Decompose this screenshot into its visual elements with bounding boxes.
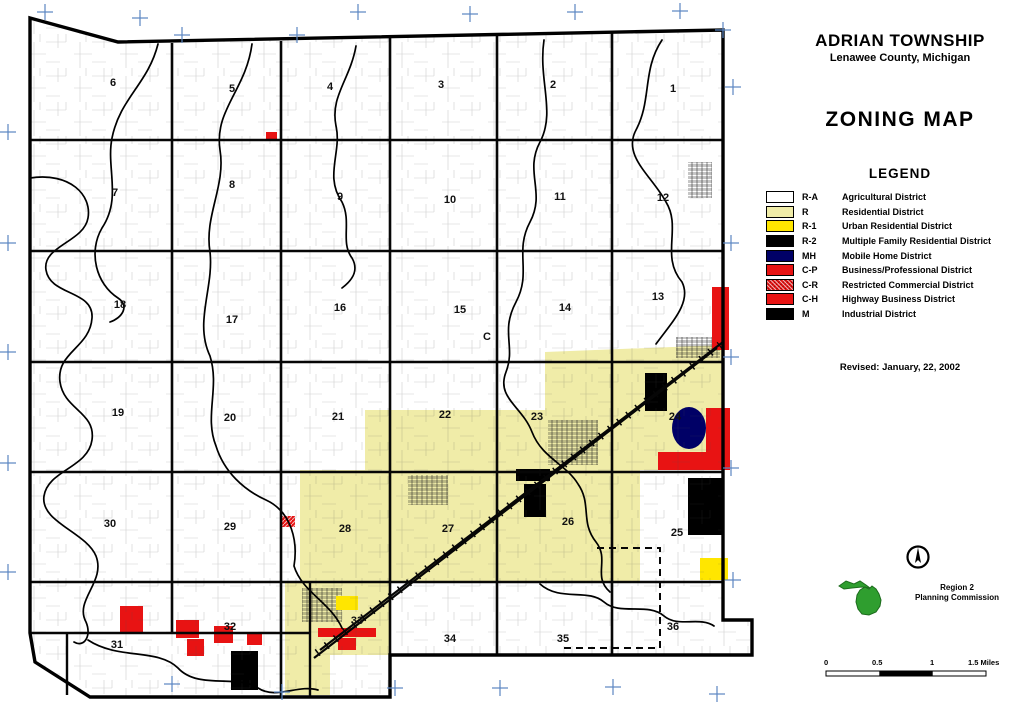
grid-tick [132, 10, 148, 26]
scale-bar: 0 0.5 1 1.5 Miles [822, 658, 1022, 686]
section-label-10: 10 [444, 194, 456, 206]
michigan-state-logo-icon [836, 572, 896, 618]
legend-code: M [802, 309, 842, 319]
zoning-map-page: 6543217891011121817161514131920212223243… [0, 0, 1024, 720]
section-label-24: 24 [669, 411, 682, 423]
legend-entry-R-1: R-1Urban Residential District [766, 219, 1020, 234]
section-label-17: 17 [226, 314, 238, 326]
north-arrow-svg [905, 544, 931, 570]
section-label-2: 2 [550, 79, 556, 91]
section-label-4: 4 [327, 81, 334, 93]
legend-label: Highway Business District [842, 294, 955, 304]
grid-tick [725, 79, 741, 95]
scale-bar-graphic [822, 669, 998, 679]
section-label-16: 16 [334, 302, 346, 314]
scale-bar-middle-segment [879, 671, 932, 676]
legend-label: Urban Residential District [842, 221, 952, 231]
section-label-32: 32 [224, 621, 236, 633]
legend-label: Agricultural District [842, 192, 926, 202]
section-label-1: 1 [670, 83, 676, 95]
grid-tick [350, 4, 366, 20]
section-label-11: 11 [554, 191, 566, 203]
section-label-35: 35 [557, 633, 569, 645]
section-label-19: 19 [112, 407, 124, 419]
planning-commission-label: Region 2 Planning Commission [893, 583, 1021, 603]
section-label-20: 20 [224, 412, 236, 424]
legend-swatch-R-2 [766, 235, 794, 247]
section-label-6: 6 [110, 77, 116, 89]
legend-code: C-R [802, 280, 842, 290]
legend-label: Business/Professional District [842, 265, 972, 275]
section-label-26: 26 [562, 516, 574, 528]
section-label-29: 29 [224, 521, 236, 533]
legend-label: Industrial District [842, 309, 916, 319]
county-subtitle: Lenawee County, Michigan [780, 52, 1020, 64]
section-label-15: 15 [454, 304, 466, 316]
section-label-30: 30 [104, 518, 116, 530]
grid-tick [462, 6, 478, 22]
legend-swatch-C-R [766, 279, 794, 291]
section-label-14: 14 [559, 302, 572, 314]
legend-swatch-R-A [766, 191, 794, 203]
scale-label-15: 1.5 Miles [968, 658, 999, 667]
scale-label-05: 0.5 [872, 658, 882, 667]
legend-entry-R-A: R-AAgricultural District [766, 190, 1020, 205]
logo-line2: Planning Commission [893, 593, 1021, 603]
grid-tick [0, 564, 16, 580]
legend-swatch-M [766, 308, 794, 320]
section-label-18: 18 [114, 299, 126, 311]
section-label-31: 31 [111, 639, 123, 651]
legend-code: C-P [802, 265, 842, 275]
legend-code: R-2 [802, 236, 842, 246]
section-label-34: 34 [444, 633, 457, 645]
grid-tick [723, 235, 739, 251]
legend-code: R-A [802, 192, 842, 202]
township-map: 6543217891011121817161514131920212223243… [0, 0, 770, 720]
legend-entry-C-P: C-PBusiness/Professional District [766, 263, 1020, 278]
map-label-C: C [483, 331, 491, 343]
township-title: ADRIAN TOWNSHIP [780, 31, 1020, 51]
grid-tick [492, 680, 508, 696]
section-label-25: 25 [671, 527, 683, 539]
legend-label: Mobile Home District [842, 251, 932, 261]
map-type-title: ZONING MAP [780, 108, 1020, 132]
section-label-9: 9 [337, 191, 343, 203]
grid-tick [0, 455, 16, 471]
legend-label: Restricted Commercial District [842, 280, 974, 290]
legend: R-AAgricultural DistrictRResidential Dis… [766, 190, 1020, 321]
grid-tick [605, 679, 621, 695]
legend-entry-C-H: C-HHighway Business District [766, 292, 1020, 307]
grid-tick [567, 4, 583, 20]
north-arrow-icon [905, 544, 931, 570]
section-label-3: 3 [438, 79, 444, 91]
section-label-33: 33 [351, 615, 363, 627]
legend-code: C-H [802, 294, 842, 304]
section-label-7: 7 [112, 187, 118, 199]
legend-title: LEGEND [780, 166, 1020, 181]
logo-line1: Region 2 [893, 583, 1021, 593]
legend-swatch-MH [766, 250, 794, 262]
scale-label-1: 1 [930, 658, 934, 667]
legend-entry-MH: MHMobile Home District [766, 248, 1020, 263]
revised-date: Revised: January, 22, 2002 [780, 362, 1020, 373]
legend-label: Multiple Family Residential District [842, 236, 991, 246]
legend-entry-R-2: R-2Multiple Family Residential District [766, 234, 1020, 249]
section-label-23: 23 [531, 411, 543, 423]
legend-swatch-R [766, 206, 794, 218]
legend-code: MH [802, 251, 842, 261]
section-label-8: 8 [229, 179, 235, 191]
section-label-22: 22 [439, 409, 451, 421]
grid-tick [709, 686, 725, 702]
scale-label-0: 0 [824, 658, 828, 667]
legend-code: R-1 [802, 221, 842, 231]
legend-label: Residential District [842, 207, 924, 217]
grid-tick [0, 235, 16, 251]
grid-tick [0, 344, 16, 360]
section-label-36: 36 [667, 621, 679, 633]
michigan-lower-peninsula [856, 586, 881, 615]
grid-tick [723, 349, 739, 365]
legend-entry-C-R: C-RRestricted Commercial District [766, 278, 1020, 293]
section-label-21: 21 [332, 411, 344, 423]
legend-swatch-C-H [766, 293, 794, 305]
section-label-28: 28 [339, 523, 351, 535]
legend-entry-R: RResidential District [766, 205, 1020, 220]
legend-swatch-C-P [766, 264, 794, 276]
legend-entry-M: MIndustrial District [766, 307, 1020, 322]
michigan-logo-svg [836, 572, 896, 618]
section-label-12: 12 [657, 192, 669, 204]
section-label-5: 5 [229, 83, 235, 95]
grid-tick [0, 124, 16, 140]
grid-tick [672, 3, 688, 19]
legend-code: R [802, 207, 842, 217]
section-label-27: 27 [442, 523, 454, 535]
title-block: ADRIAN TOWNSHIP Lenawee County, Michigan [780, 31, 1020, 64]
legend-swatch-R-1 [766, 220, 794, 232]
grid-tick [37, 4, 53, 20]
section-label-13: 13 [652, 291, 664, 303]
north-arrow-pointer [915, 548, 921, 564]
